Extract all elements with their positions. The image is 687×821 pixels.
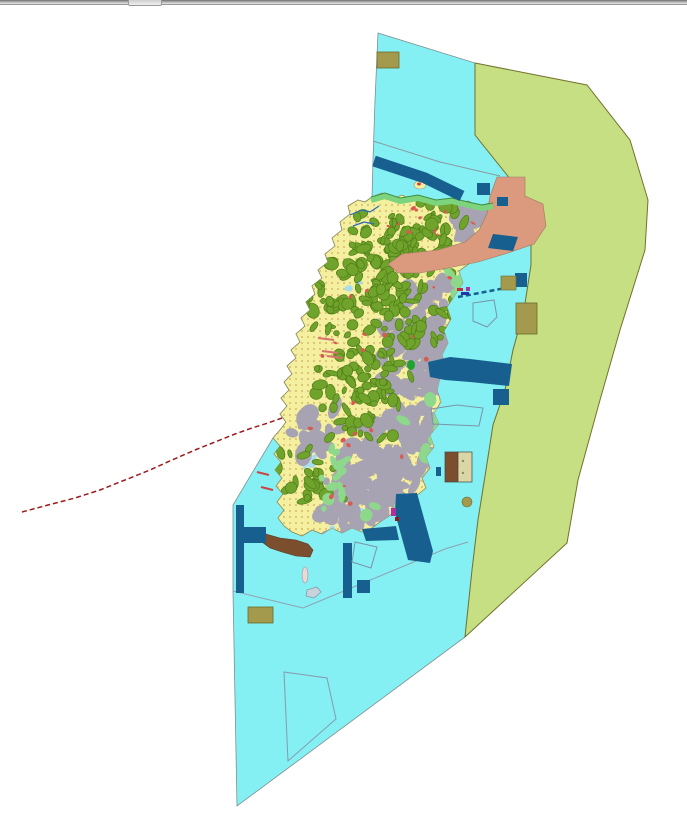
khaki-dot-sea [462, 497, 472, 507]
brown-khaki-box-dot-2 [462, 472, 464, 474]
navy-square-mid-east [493, 389, 509, 405]
navy-square-south [357, 580, 370, 593]
navy-rect-ne-2 [497, 197, 508, 206]
khaki-square-top [377, 52, 399, 68]
navy-vertical-bar-south [343, 543, 352, 598]
navy-bits-coast [436, 467, 441, 476]
map-canvas[interactable] [0, 5, 687, 821]
navy-rect-ne-1 [477, 183, 490, 195]
islet-pale-ellipse [302, 567, 308, 583]
brown-khaki-box-dot-1 [462, 460, 464, 462]
navy-parallelogram-ne [488, 234, 518, 251]
pier-cluster-east-red [457, 288, 463, 291]
harbor-green-dot [407, 360, 415, 370]
navy-t-shape-bar [236, 527, 266, 543]
brown-khaki-box-khaki-half [458, 452, 472, 482]
pier-darkred-south [395, 517, 399, 521]
pier-cluster-east-blue [461, 292, 469, 295]
offshore-islet-north-red-mark [417, 183, 421, 186]
navy-t-shape-stem [236, 505, 244, 593]
khaki-square-bottom [248, 607, 273, 623]
pier-magenta-south [391, 508, 396, 516]
khaki-rect-east-large [516, 303, 537, 334]
khaki-square-east-small [501, 276, 516, 290]
brown-khaki-box-brown-half [445, 452, 458, 482]
navy-square-east [515, 273, 527, 287]
pier-cluster-east-magenta [466, 287, 470, 291]
